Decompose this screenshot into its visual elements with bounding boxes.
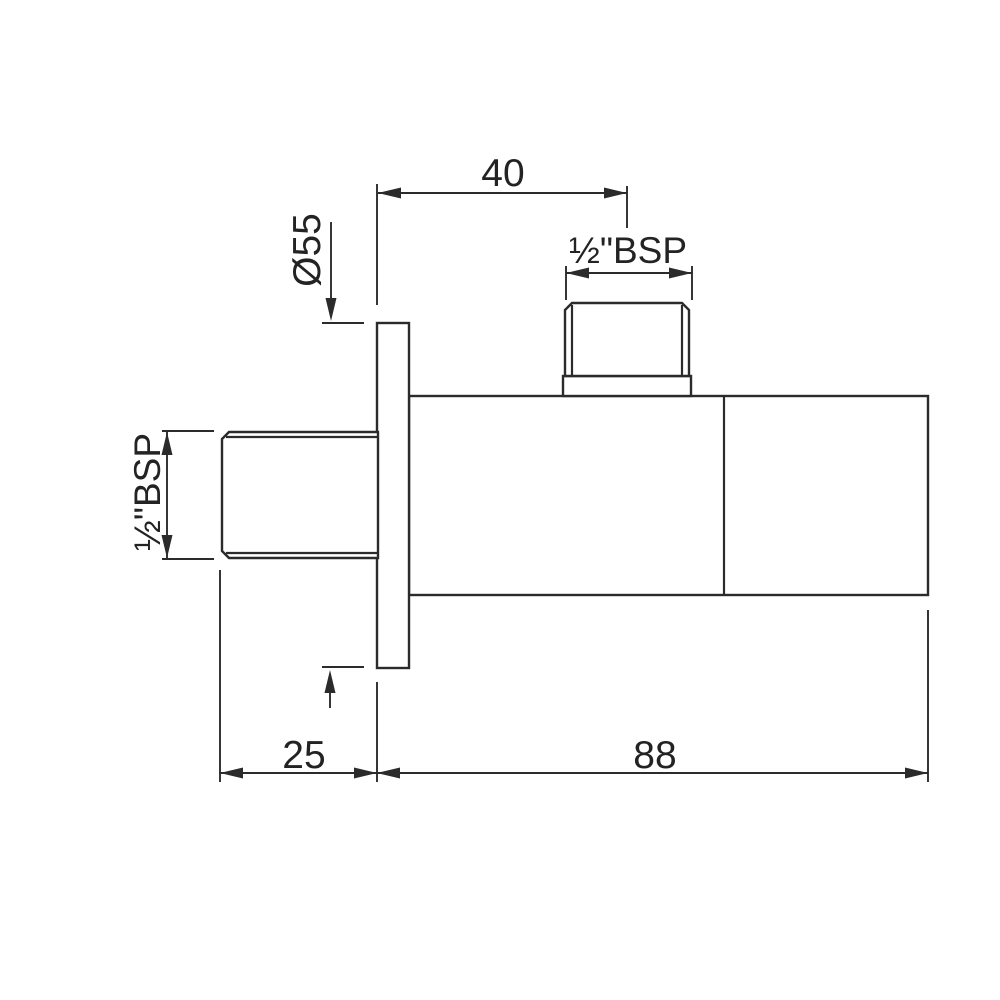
arrowhead-right-icon [905,768,928,779]
left-inlet-thread [222,432,378,558]
arrowhead-up-icon [325,670,336,693]
dimension-bottom-chain: 25 88 [220,570,928,782]
arrowhead-right-icon [354,768,377,779]
top-outlet-thread [563,303,691,396]
arrowhead-left-icon [220,768,243,779]
arrowhead-down-icon [326,298,337,321]
wall-plate-outline [377,323,409,668]
dimension-label-left-bsp: ½"BSP [127,433,168,551]
valve-body [409,396,928,595]
arrowhead-right-icon [604,188,627,199]
dimension-top-offset: 40 [377,152,627,305]
dimension-top-thread: ½"BSP [566,230,692,300]
left-inlet-nipple [222,432,378,558]
dimension-label-88: 88 [633,734,676,777]
dimension-label-25: 25 [282,734,325,777]
technical-drawing-canvas: 40 Ø55 ½"BSP ½"BSP [0,0,1000,1000]
arrowhead-left-icon [378,188,401,199]
valve-dimension-drawing: 40 Ø55 ½"BSP ½"BSP [0,0,1000,1000]
wall-plate [377,323,409,668]
valve-body-outline [409,396,928,595]
dimension-label-diameter-55: Ø55 [286,213,329,287]
top-outlet-nipple [565,303,689,376]
dimension-label-top-bsp: ½"BSP [569,230,687,271]
dimension-left-thread: ½"BSP [127,431,214,559]
arrowhead-left-icon [377,768,400,779]
dimension-label-40: 40 [481,152,524,195]
top-outlet-collar [563,376,691,396]
